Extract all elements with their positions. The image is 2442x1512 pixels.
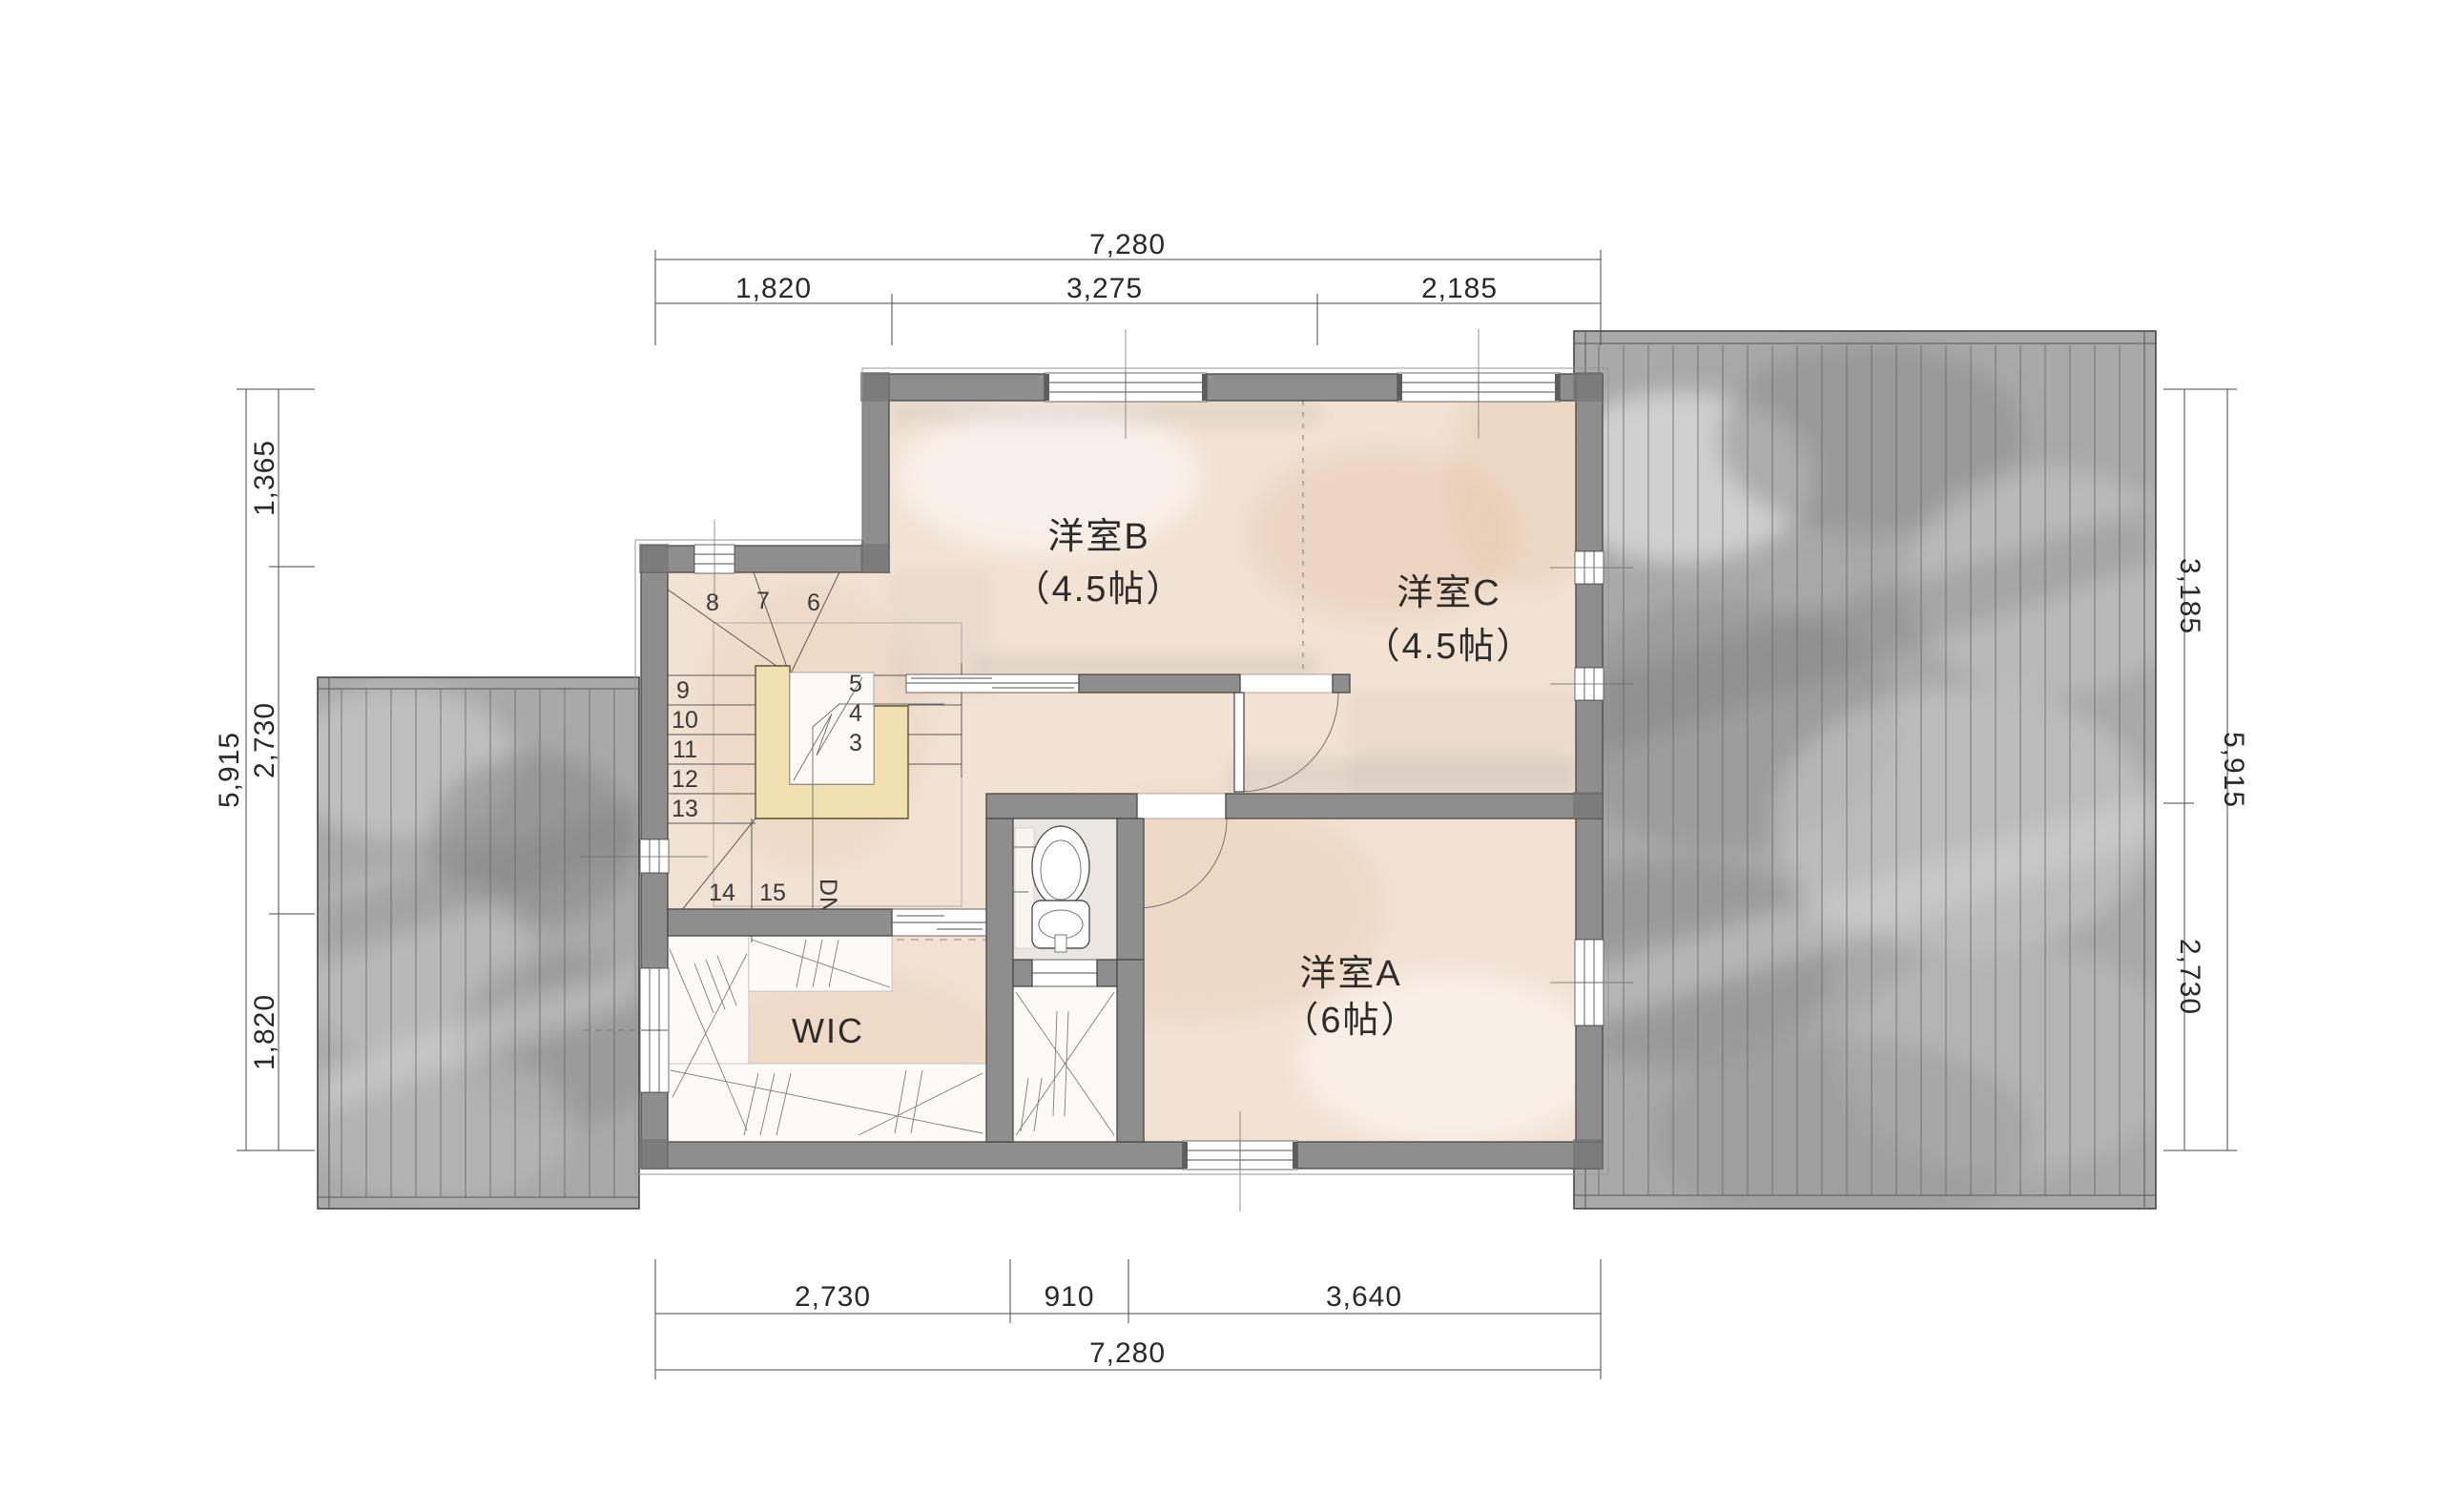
- dim-bottom-total: 7,280: [1089, 1337, 1166, 1369]
- dim-right-seg2: 2,730: [2174, 939, 2205, 1015]
- dimension-top: 7,280 1,820 3,275 2,185: [655, 229, 1601, 345]
- floor-plan-page: 5 4 3 6 7 8 9 10 11 12 13 14 15 DN: [0, 0, 2442, 1512]
- room-a-size: （6帖）: [1282, 1001, 1418, 1041]
- dim-bottom-seg3: 3,640: [1326, 1281, 1402, 1313]
- dimension-left: 1,365 2,730 1,820 5,915: [214, 389, 315, 1150]
- room-b-size: （4.5帖）: [1014, 570, 1185, 610]
- stair-west-window: [640, 839, 669, 873]
- dim-left-seg1: 1,365: [249, 440, 280, 516]
- room-b-name: 洋室B: [1047, 517, 1149, 557]
- step-3: 3: [849, 730, 862, 756]
- floor-plan-drawing: 5 4 3 6 7 8 9 10 11 12 13 14 15 DN: [0, 0, 2442, 1512]
- step-7: 7: [756, 588, 770, 614]
- dim-top-seg1: 1,820: [735, 273, 812, 304]
- right-roof: [1526, 331, 2194, 1231]
- dim-left-total: 5,915: [214, 732, 245, 808]
- room-a-name: 洋室A: [1299, 954, 1401, 994]
- step-12: 12: [672, 766, 698, 793]
- step-5: 5: [849, 671, 862, 697]
- step-10: 10: [672, 707, 698, 734]
- step-15: 15: [759, 880, 786, 906]
- dim-left-seg3: 1,820: [249, 994, 280, 1070]
- step-9: 9: [676, 677, 690, 704]
- toilet-slider: [1032, 960, 1097, 986]
- step-8: 8: [706, 590, 719, 616]
- toilet-icon: [1032, 826, 1089, 952]
- dim-bottom-seg2: 910: [1044, 1281, 1094, 1313]
- step-11: 11: [673, 736, 697, 763]
- step-6: 6: [807, 590, 820, 616]
- dim-right-seg1: 3,185: [2174, 558, 2205, 634]
- room-b-closet-slider: [906, 674, 1079, 693]
- room-c-name: 洋室C: [1397, 573, 1500, 613]
- toilet-room: [996, 818, 1117, 960]
- room-c-size: （4.5帖）: [1364, 627, 1535, 667]
- left-roof: [286, 677, 668, 1209]
- dim-left-seg2: 2,730: [249, 702, 280, 778]
- dim-top-seg3: 2,185: [1421, 273, 1498, 304]
- dim-top-total: 7,280: [1089, 229, 1166, 260]
- wic-label: WIC: [792, 1011, 864, 1050]
- wic-west-window: [640, 968, 669, 1092]
- dim-bottom-seg1: 2,730: [795, 1281, 871, 1313]
- dim-right-total: 5,915: [2218, 732, 2249, 808]
- step-14: 14: [709, 880, 735, 906]
- room-a-closet: [1013, 986, 1117, 1142]
- dimension-bottom: 2,730 910 3,640 7,280: [655, 1259, 1601, 1379]
- wic-entry-slider: [892, 909, 986, 936]
- dim-top-seg2: 3,275: [1066, 273, 1143, 304]
- step-4: 4: [849, 700, 862, 727]
- step-13: 13: [672, 796, 698, 822]
- dimension-right: 3,185 2,730 5,915: [2163, 389, 2249, 1150]
